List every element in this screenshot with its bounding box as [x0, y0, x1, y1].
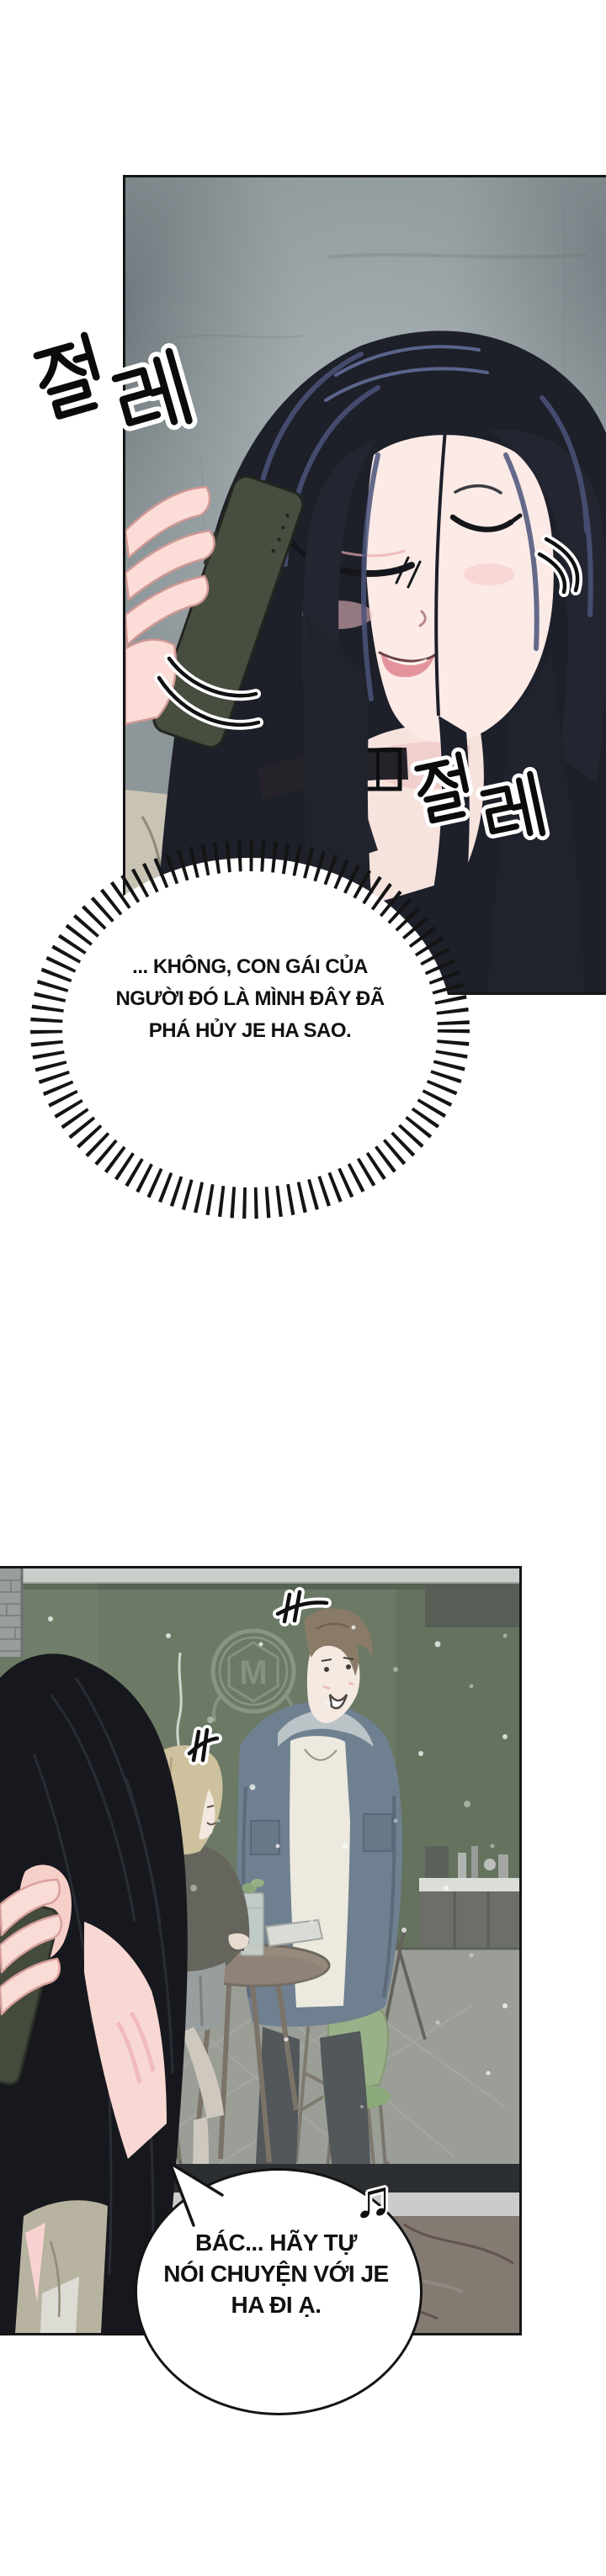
bubble-line: NGƯỜI ĐÓ LÀ MÌNH ĐÂY ĐÃ — [23, 983, 477, 1015]
bubble-line: HA ĐI Ạ. — [135, 2289, 417, 2320]
burst-bubble-text: ... KHÔNG, CON GÁI CỦA NGƯỜI ĐÓ LÀ MÌNH … — [23, 951, 477, 1047]
sfx-jeolle-1: 절레 — [25, 330, 206, 489]
bubble-line: PHÁ HỦY JE HA SAO. — [23, 1015, 477, 1047]
bubble-line: NÓI CHUYỆN VỚI JE — [135, 2258, 417, 2289]
speech-bubble-tail — [157, 2146, 258, 2239]
music-note-icon: ♫ — [353, 2170, 393, 2230]
bubble-line: BÁC... HÃY TỰ — [135, 2227, 417, 2258]
comic-page: M — [0, 0, 606, 2576]
sfx-jeolle-2: 절레 — [407, 745, 571, 892]
bubble-line: ... KHÔNG, CON GÁI CỦA — [23, 951, 477, 983]
oval-bubble-text: BÁC... HÃY TỰ NÓI CHUYỆN VỚI JE HA ĐI Ạ. — [135, 2227, 417, 2320]
blush-right — [464, 563, 514, 585]
